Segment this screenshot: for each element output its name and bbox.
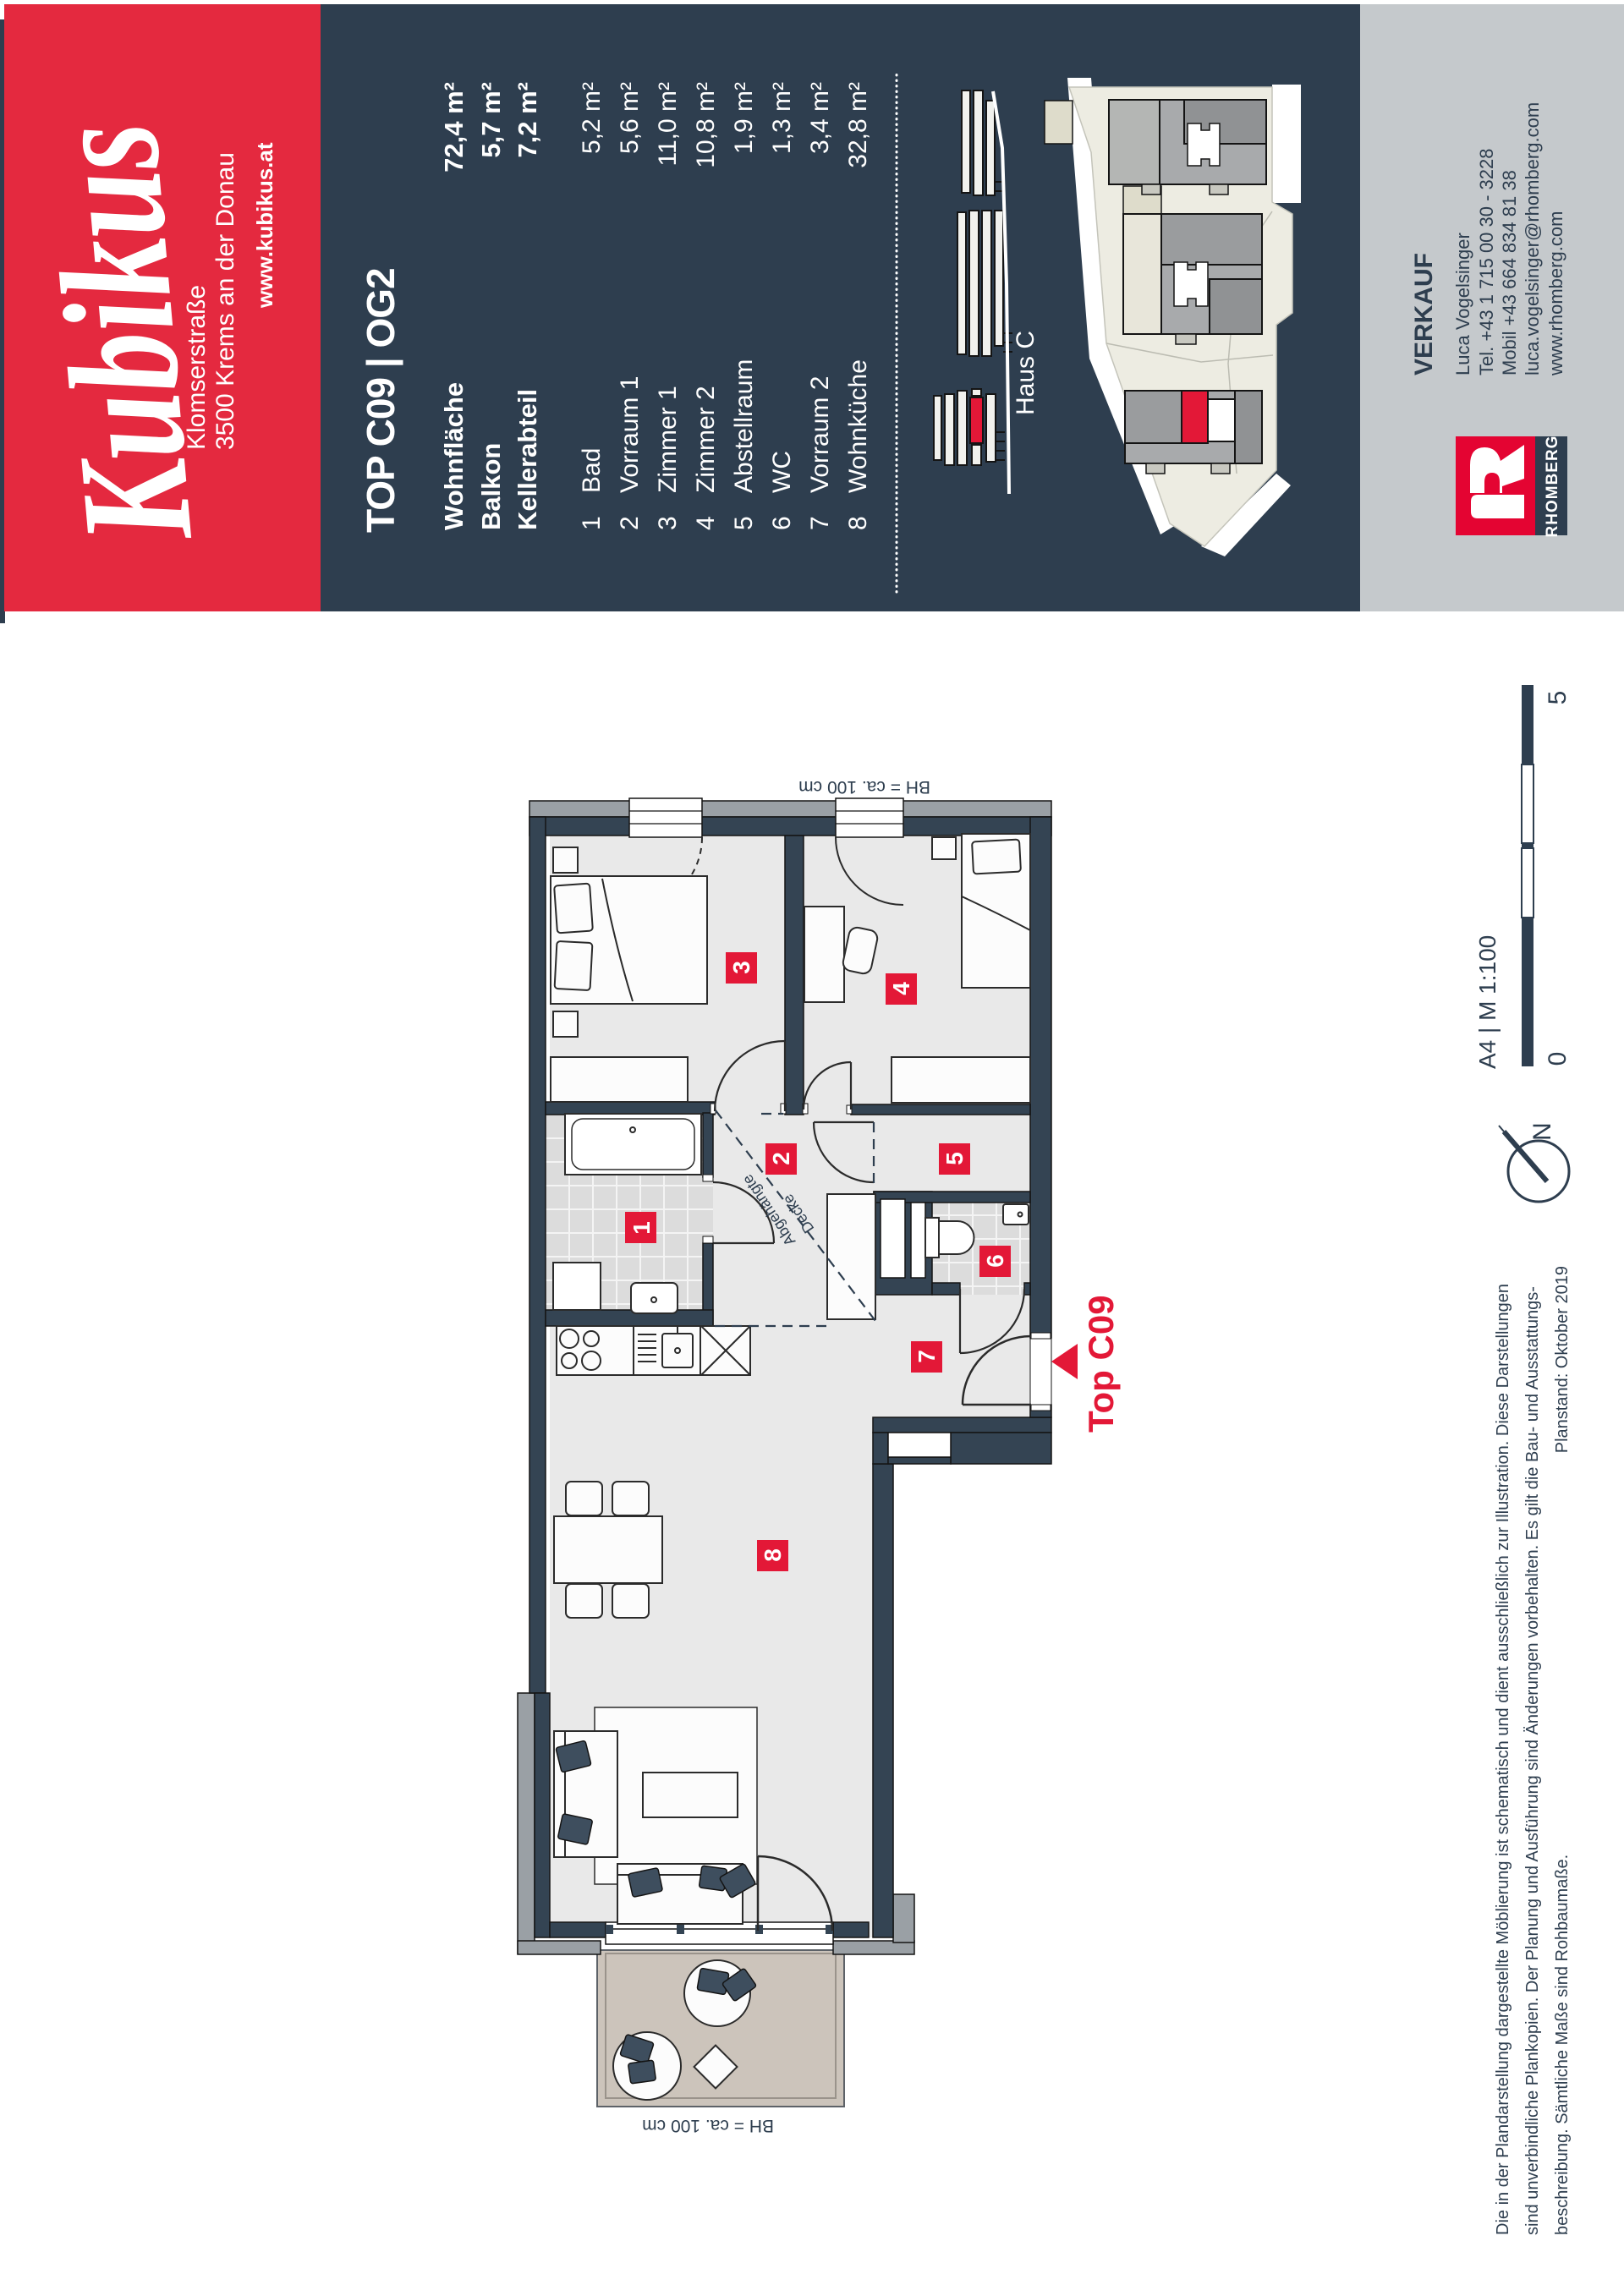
svg-text:Die in der Plandarstellung dar: Die in der Plandarstellung dargestellte … — [1494, 1284, 1512, 2235]
svg-text:5: 5 — [941, 1152, 968, 1165]
svg-text:3500 Krems an der Donau: 3500 Krems an der Donau — [211, 152, 239, 450]
svg-text:Kellerabteil: Kellerabteil — [513, 389, 542, 530]
svg-text:Wohnküche: Wohnküche — [844, 359, 872, 493]
svg-text:A4 | M 1:100: A4 | M 1:100 — [1474, 935, 1501, 1069]
svg-text:Mobil +43 664 834 81 38: Mobil +43 664 834 81 38 — [1499, 170, 1520, 375]
svg-text:0: 0 — [1544, 1052, 1572, 1066]
svg-text:11,0 m²: 11,0 m² — [654, 82, 682, 166]
svg-text:3: 3 — [728, 961, 754, 974]
svg-text:1,9 m²: 1,9 m² — [730, 82, 758, 154]
svg-text:BH = ca. 100 cm: BH = ca. 100 cm — [642, 2116, 774, 2135]
svg-text:Vorraum 1: Vorraum 1 — [616, 376, 644, 493]
svg-text:Abstellraum: Abstellraum — [730, 359, 758, 493]
svg-text:Zimmer 1: Zimmer 1 — [654, 386, 682, 493]
svg-text:5: 5 — [730, 516, 758, 530]
svg-text:6: 6 — [982, 1254, 1008, 1268]
svg-text:N: N — [1528, 1122, 1556, 1141]
svg-text:10,8 m²: 10,8 m² — [692, 82, 720, 168]
svg-text:Luca Vogelsinger: Luca Vogelsinger — [1452, 233, 1473, 375]
svg-text:5,2 m²: 5,2 m² — [578, 82, 606, 154]
svg-text:2: 2 — [768, 1152, 794, 1165]
svg-text:4: 4 — [888, 982, 914, 995]
svg-text:Balkon: Balkon — [476, 443, 506, 530]
svg-text:beschreibung. Sämtliche Maße s: beschreibung. Sämtliche Maße sind Rohbau… — [1553, 1855, 1572, 2235]
svg-text:7,2 m²: 7,2 m² — [513, 82, 542, 158]
svg-text:BH = ca. 100 cm: BH = ca. 100 cm — [798, 777, 930, 797]
svg-text:2: 2 — [616, 516, 644, 530]
svg-text:WC: WC — [768, 451, 796, 493]
svg-text:www.rhomberg.com: www.rhomberg.com — [1545, 211, 1566, 376]
svg-text:VERKAUF: VERKAUF — [1410, 253, 1438, 375]
svg-text:1: 1 — [628, 1221, 655, 1235]
svg-text:Planstand: Oktober 2019: Planstand: Oktober 2019 — [1553, 1266, 1572, 1453]
svg-text:1,3 m²: 1,3 m² — [768, 82, 796, 154]
svg-text:5,6 m²: 5,6 m² — [616, 82, 644, 154]
svg-text:6: 6 — [768, 516, 796, 530]
svg-text:Top C09: Top C09 — [1081, 1295, 1121, 1433]
svg-text:7: 7 — [913, 1350, 940, 1363]
svg-text:4: 4 — [692, 516, 720, 530]
svg-text:Haus C: Haus C — [1012, 331, 1040, 415]
svg-text:RHOMBERG: RHOMBERG — [1544, 436, 1561, 538]
svg-text:Bad: Bad — [578, 448, 606, 493]
svg-text:sind unverbindliche Plankopien: sind unverbindliche Plankopien. Der Plan… — [1523, 1286, 1542, 2235]
svg-text:3,4 m²: 3,4 m² — [806, 82, 834, 154]
svg-text:7: 7 — [806, 516, 834, 530]
svg-text:72,4 m²: 72,4 m² — [439, 82, 469, 173]
svg-text:TOP C09 | OG2: TOP C09 | OG2 — [359, 268, 403, 533]
svg-text:8: 8 — [844, 516, 872, 530]
svg-text:5,7 m²: 5,7 m² — [476, 82, 506, 158]
svg-text:5: 5 — [1544, 691, 1572, 705]
svg-text:8: 8 — [760, 1548, 786, 1562]
svg-text:32,8 m²: 32,8 m² — [844, 82, 872, 168]
svg-text:3: 3 — [654, 516, 682, 530]
svg-text:1: 1 — [578, 516, 606, 530]
svg-text:www.kubikus.at: www.kubikus.at — [252, 142, 277, 309]
svg-text:Klomserstraße: Klomserstraße — [183, 285, 211, 450]
svg-text:luca.vogelsinger@rhomberg.com: luca.vogelsinger@rhomberg.com — [1522, 102, 1543, 375]
svg-text:Tel. +43 1 715 00 30 - 3228: Tel. +43 1 715 00 30 - 3228 — [1476, 149, 1497, 376]
svg-text:Vorraum 2: Vorraum 2 — [806, 376, 834, 493]
svg-text:Zimmer 2: Zimmer 2 — [692, 386, 720, 493]
svg-text:Wohnfläche: Wohnfläche — [439, 382, 469, 530]
